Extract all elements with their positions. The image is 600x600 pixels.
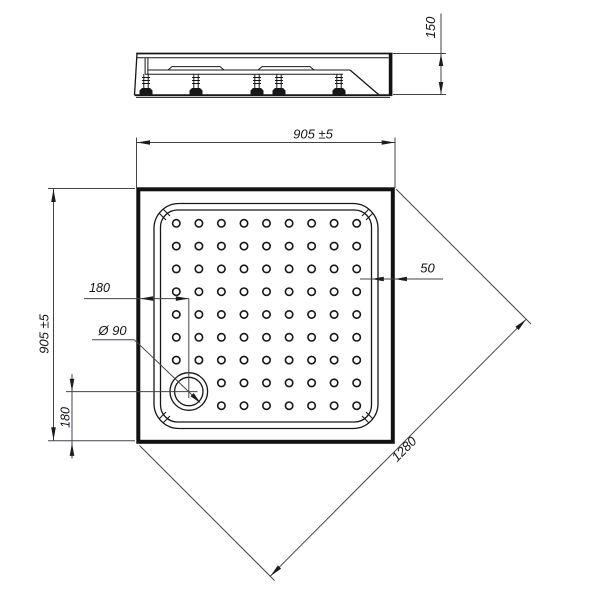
dim-rim-width: 50	[360, 261, 443, 282]
dot	[263, 242, 270, 249]
dot	[285, 220, 292, 227]
dot	[353, 402, 360, 409]
dot	[285, 288, 292, 295]
depth-label: 905 ±5	[37, 313, 52, 353]
dot	[173, 356, 180, 363]
dot	[173, 334, 180, 341]
dot	[263, 356, 270, 363]
dot	[218, 402, 225, 409]
dot	[353, 265, 360, 272]
drain-offset-x-label: 180	[89, 281, 110, 295]
dot	[240, 220, 247, 227]
dot	[263, 379, 270, 386]
dot	[308, 288, 315, 295]
dot	[285, 356, 292, 363]
dot	[308, 402, 315, 409]
height-label: 150	[423, 16, 438, 38]
dim-depth: 905 ±5	[37, 189, 136, 441]
dot	[353, 220, 360, 227]
dot	[263, 220, 270, 227]
anti-slip-dots	[173, 220, 361, 410]
dot	[218, 379, 225, 386]
dot	[285, 265, 292, 272]
dot	[353, 311, 360, 318]
dot	[308, 311, 315, 318]
dot	[353, 242, 360, 249]
dot	[173, 242, 180, 249]
dot	[195, 265, 202, 272]
dot	[353, 334, 360, 341]
dot	[195, 288, 202, 295]
dot	[240, 379, 247, 386]
label-drain-diameter: Ø 90	[92, 323, 201, 403]
dot	[173, 311, 180, 318]
dot	[330, 356, 337, 363]
dot	[218, 265, 225, 272]
dot	[173, 220, 180, 227]
dot	[330, 311, 337, 318]
dim-width: 905 ±5	[137, 127, 396, 189]
dot	[218, 242, 225, 249]
drain-diameter-label: Ø 90	[97, 323, 127, 338]
dot	[240, 311, 247, 318]
shower-tray-drawing: 150 905 ±5 905 ±	[0, 0, 600, 600]
dim-height: 150	[393, 14, 446, 96]
dot	[330, 334, 337, 341]
dot	[308, 379, 315, 386]
rim-width-label: 50	[420, 261, 435, 276]
dot	[173, 288, 180, 295]
dot	[353, 356, 360, 363]
dot	[285, 402, 292, 409]
drain-offset-y-label: 180	[59, 407, 73, 428]
dot	[240, 288, 247, 295]
dot	[330, 265, 337, 272]
dot	[263, 334, 270, 341]
dot	[240, 402, 247, 409]
dot	[330, 379, 337, 386]
dot	[330, 402, 337, 409]
technical-drawing-page: 150 905 ±5 905 ±	[0, 0, 600, 600]
dot	[308, 220, 315, 227]
dot	[218, 220, 225, 227]
plan-view	[138, 189, 392, 441]
dim-drain-offset-y: 180	[59, 374, 198, 459]
dot	[218, 311, 225, 318]
dot	[263, 402, 270, 409]
dot	[195, 242, 202, 249]
side-view	[135, 54, 393, 98]
dot	[240, 334, 247, 341]
dot	[308, 356, 315, 363]
dot	[263, 265, 270, 272]
dot	[218, 288, 225, 295]
dot	[285, 334, 292, 341]
dot	[353, 379, 360, 386]
dot	[195, 311, 202, 318]
dot	[195, 334, 202, 341]
dot	[330, 220, 337, 227]
dot	[240, 242, 247, 249]
dot	[308, 265, 315, 272]
dot	[218, 334, 225, 341]
dot	[308, 334, 315, 341]
dot	[353, 288, 360, 295]
dot	[195, 220, 202, 227]
dot	[240, 265, 247, 272]
dot	[285, 311, 292, 318]
dot	[240, 356, 247, 363]
dot	[263, 311, 270, 318]
dot	[330, 288, 337, 295]
dot	[218, 356, 225, 363]
dot	[308, 242, 315, 249]
dot	[173, 265, 180, 272]
dot	[330, 242, 337, 249]
dot	[285, 379, 292, 386]
tray-left-edge	[135, 54, 138, 96]
width-label: 905 ±5	[293, 127, 333, 142]
dot	[195, 356, 202, 363]
dot	[263, 288, 270, 295]
adjustable-feet	[140, 74, 346, 95]
dot	[285, 242, 292, 249]
